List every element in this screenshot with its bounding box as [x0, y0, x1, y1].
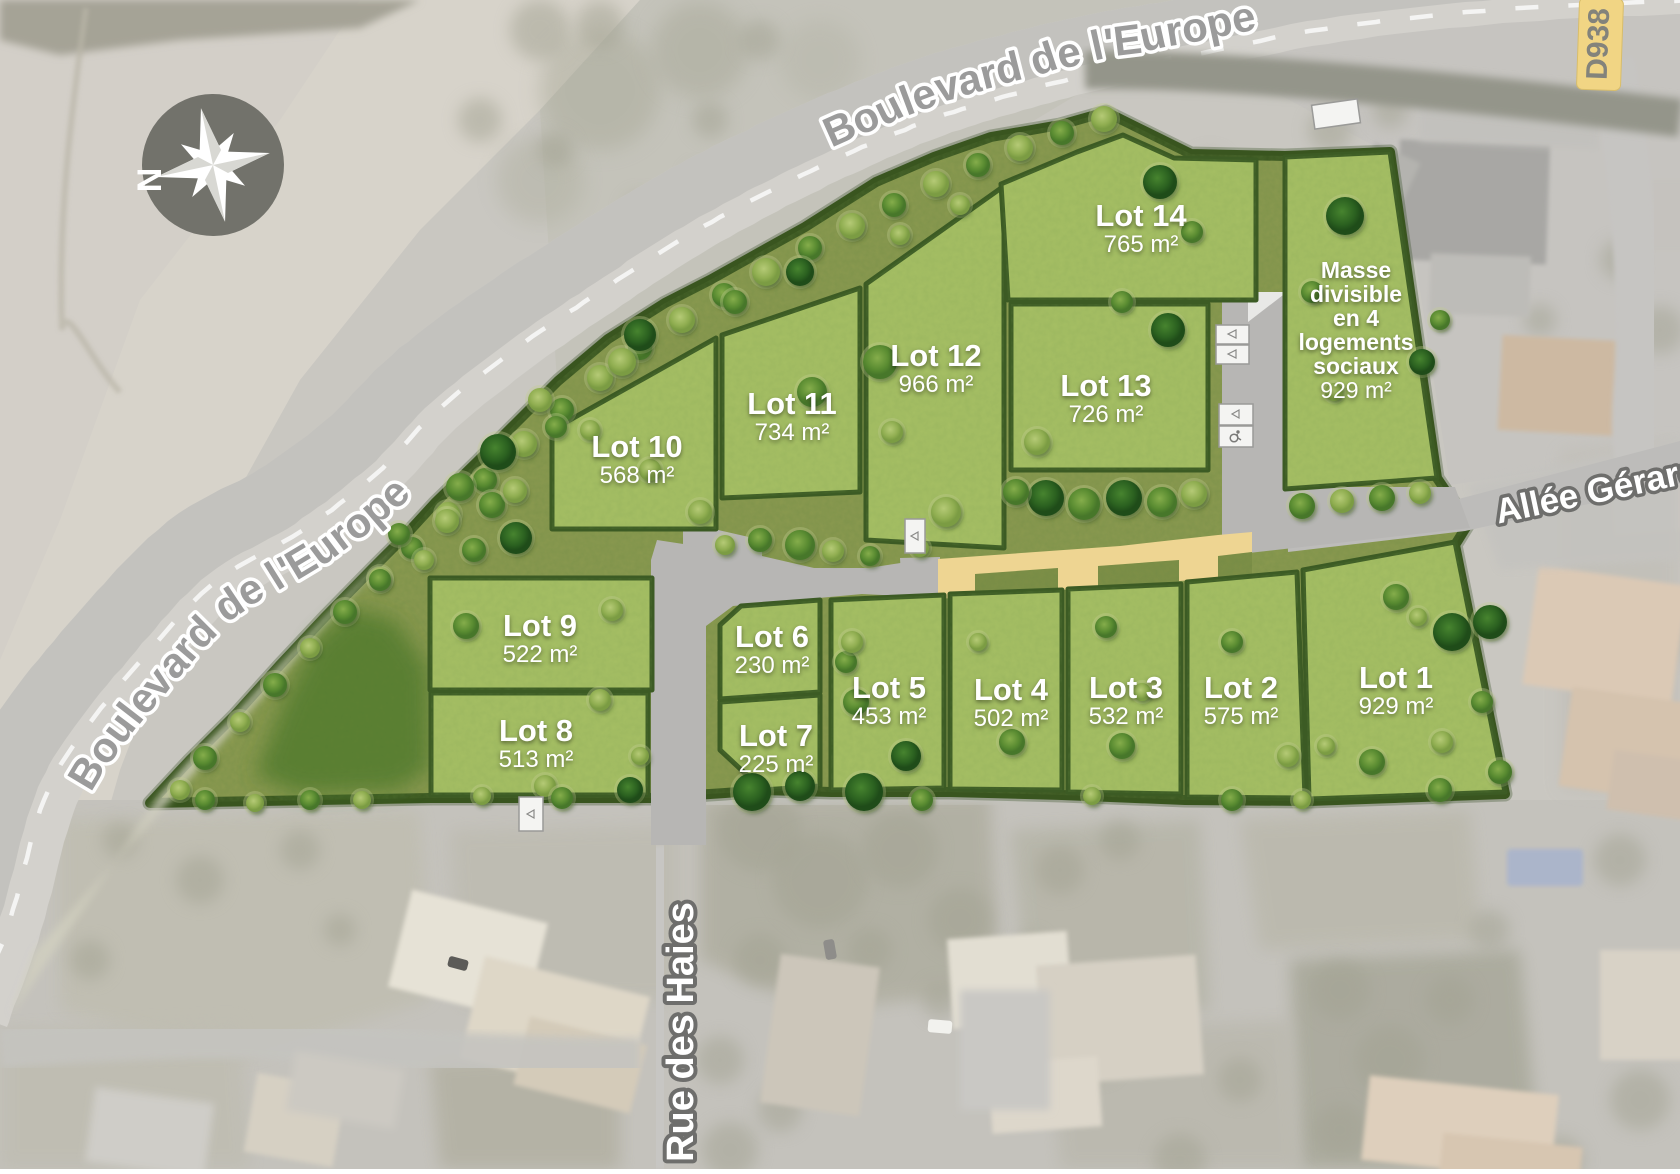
svg-text:765 m²: 765 m²: [1104, 231, 1179, 258]
svg-text:532 m²: 532 m²: [1089, 703, 1164, 730]
svg-text:N: N: [131, 168, 169, 193]
svg-text:Lot 8: Lot 8: [499, 713, 573, 748]
svg-text:522 m²: 522 m²: [503, 641, 578, 668]
svg-text:logements: logements: [1298, 329, 1413, 355]
svg-text:568 m²: 568 m²: [600, 462, 675, 489]
svg-text:929 m²: 929 m²: [1320, 377, 1392, 403]
svg-text:Masse: Masse: [1321, 257, 1391, 283]
svg-text:Lot 6: Lot 6: [735, 619, 809, 654]
svg-text:502 m²: 502 m²: [974, 705, 1049, 732]
svg-text:Lot 1: Lot 1: [1359, 660, 1433, 695]
svg-text:Lot 3: Lot 3: [1089, 670, 1163, 705]
svg-text:966 m²: 966 m²: [899, 371, 974, 398]
svg-text:sociaux: sociaux: [1313, 353, 1399, 379]
svg-text:929 m²: 929 m²: [1359, 693, 1434, 720]
svg-text:Lot 4: Lot 4: [974, 672, 1049, 707]
svg-text:734 m²: 734 m²: [755, 419, 830, 446]
svg-text:726 m²: 726 m²: [1069, 401, 1144, 428]
svg-text:Lot 10: Lot 10: [591, 429, 682, 464]
svg-text:513 m²: 513 m²: [499, 746, 574, 773]
svg-text:Lot 12: Lot 12: [890, 338, 981, 373]
svg-text:divisible: divisible: [1310, 281, 1402, 307]
svg-text:Lot 2: Lot 2: [1204, 670, 1278, 705]
svg-text:575 m²: 575 m²: [1204, 703, 1279, 730]
svg-text:Lot 14: Lot 14: [1095, 198, 1187, 233]
svg-text:Rue des Haies: Rue des Haies: [660, 902, 702, 1162]
svg-text:Lot 9: Lot 9: [503, 608, 577, 643]
svg-text:Lot 5: Lot 5: [852, 670, 926, 705]
svg-text:Lot 11: Lot 11: [747, 386, 837, 421]
svg-text:453 m²: 453 m²: [852, 703, 927, 730]
svg-text:Lot 7: Lot 7: [739, 718, 813, 753]
svg-text:Lot 13: Lot 13: [1060, 368, 1151, 403]
svg-text:en 4: en 4: [1333, 305, 1379, 331]
svg-text:D938: D938: [1581, 8, 1616, 81]
svg-text:225 m²: 225 m²: [739, 751, 814, 778]
svg-text:230 m²: 230 m²: [735, 652, 810, 679]
